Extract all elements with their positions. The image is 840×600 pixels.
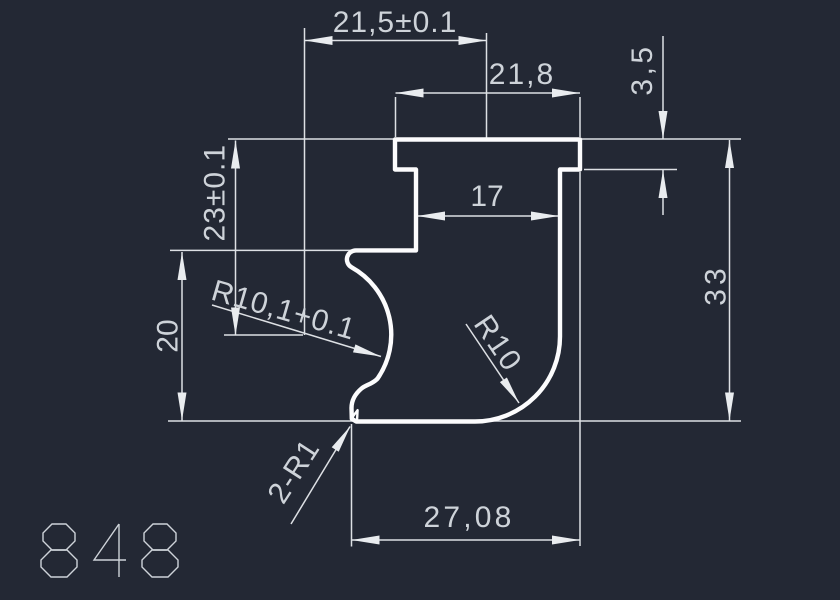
svg-text:23±0.1: 23±0.1 [199, 144, 232, 242]
svg-text:3,5: 3,5 [626, 43, 659, 95]
svg-text:21,5±0.1: 21,5±0.1 [333, 6, 458, 39]
svg-text:33: 33 [700, 264, 733, 305]
svg-text:20: 20 [152, 319, 185, 352]
svg-text:17: 17 [470, 180, 503, 213]
svg-text:21,8: 21,8 [489, 58, 555, 91]
svg-text:27,08: 27,08 [423, 501, 514, 534]
